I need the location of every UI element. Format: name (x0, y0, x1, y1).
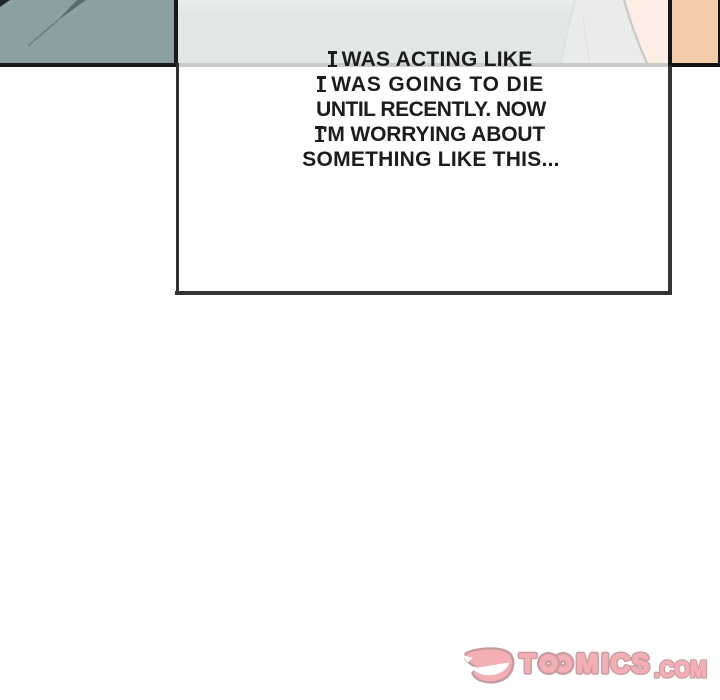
svg-text:T: T (520, 649, 537, 679)
svg-text:C: C (611, 649, 631, 679)
svg-text:I: I (602, 649, 610, 679)
svg-text:M: M (576, 649, 599, 679)
svg-text:.COM: .COM (654, 656, 707, 683)
svg-text:S: S (632, 649, 650, 679)
